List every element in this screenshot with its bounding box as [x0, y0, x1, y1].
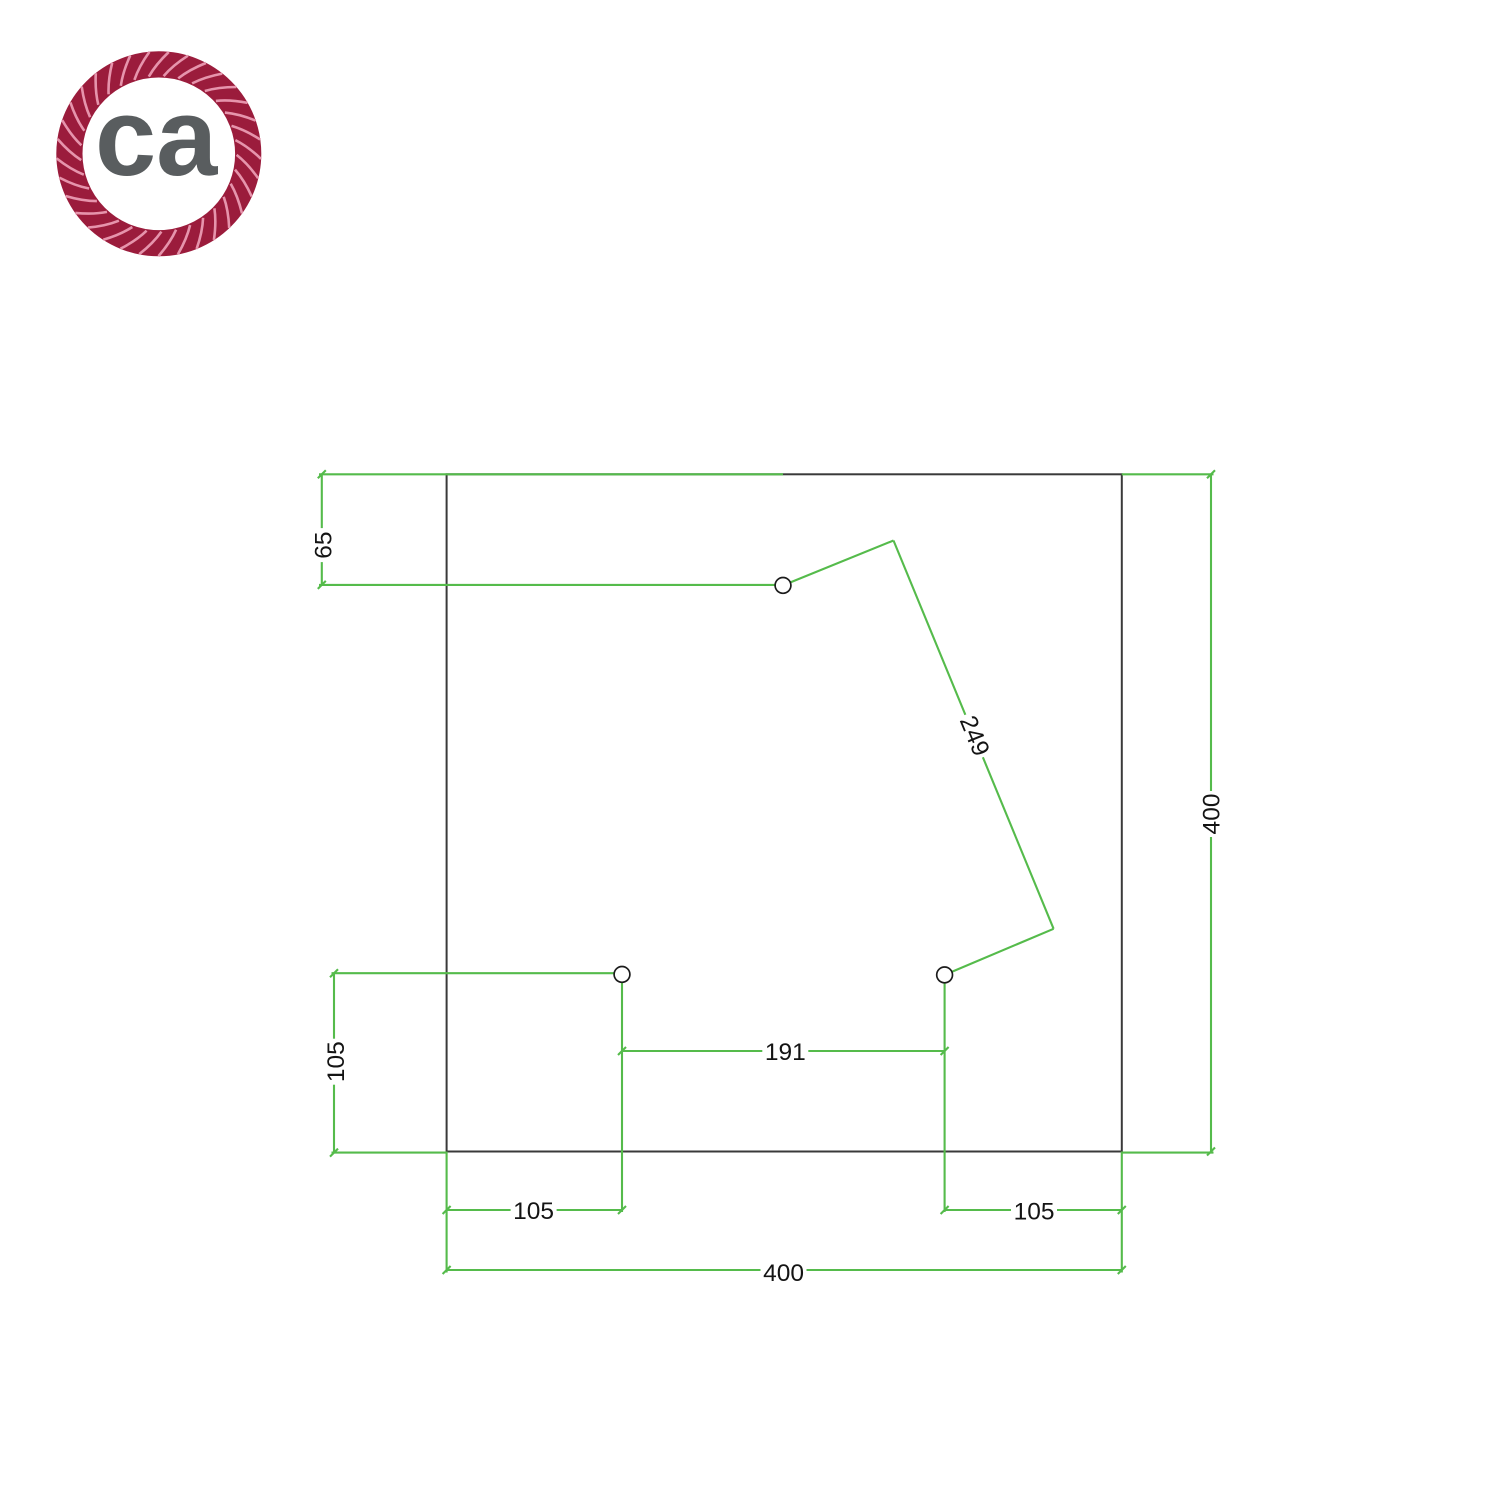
svg-text:400: 400	[1198, 794, 1225, 835]
svg-text:105: 105	[323, 1041, 350, 1082]
svg-text:105: 105	[513, 1198, 554, 1225]
svg-text:105: 105	[1014, 1198, 1055, 1225]
svg-text:65: 65	[310, 531, 337, 558]
svg-text:400: 400	[763, 1260, 804, 1287]
svg-text:ca: ca	[95, 76, 218, 199]
svg-text:191: 191	[765, 1039, 806, 1066]
